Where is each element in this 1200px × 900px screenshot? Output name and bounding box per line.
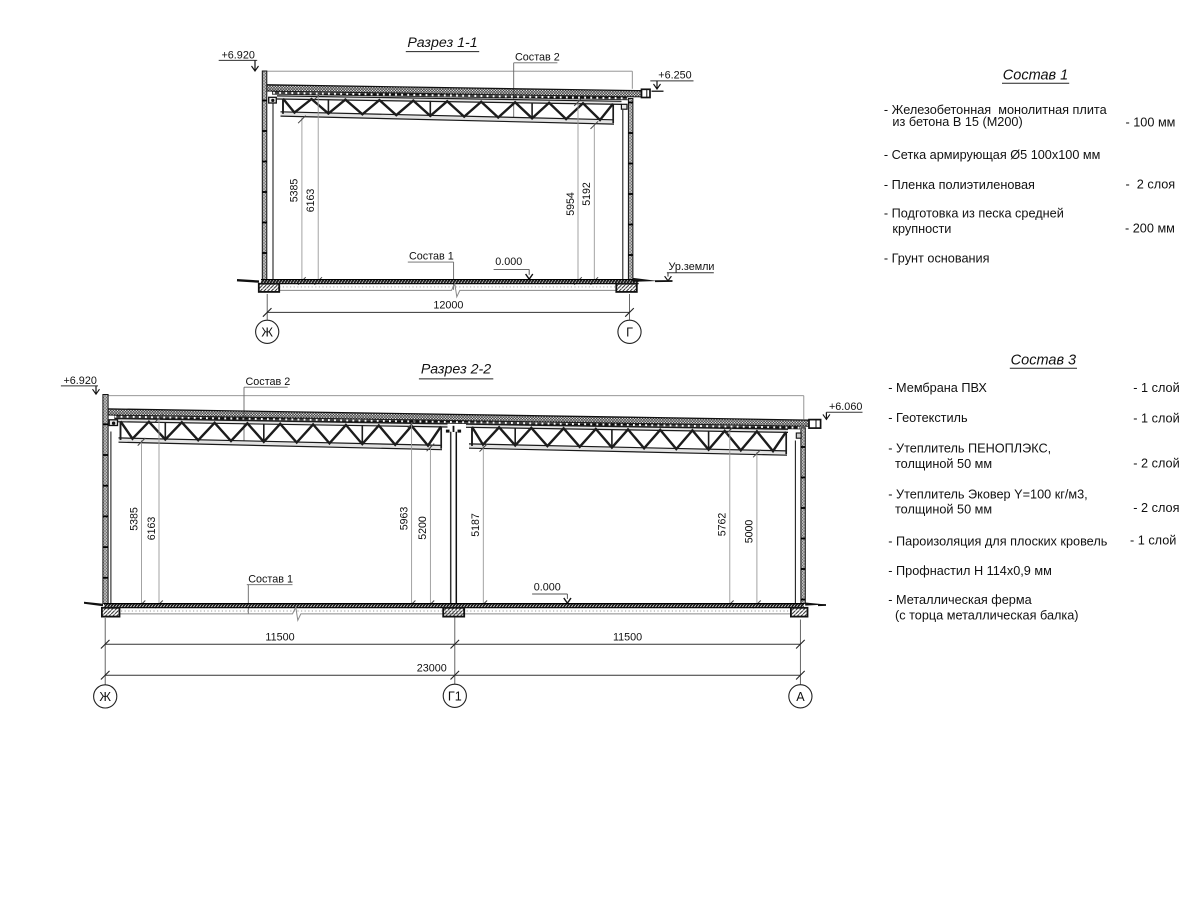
svg-text:Разрез 1-1: Разрез 1-1: [407, 35, 477, 51]
svg-text:+6.920: +6.920: [64, 375, 97, 387]
svg-text:- Пароизоляция для плоских кро: - Пароизоляция для плоских кровель: [888, 535, 1107, 549]
svg-text:Ж: Ж: [261, 325, 273, 339]
svg-text:5963: 5963: [398, 507, 410, 531]
svg-text:23000: 23000: [417, 662, 447, 674]
svg-text:11500: 11500: [613, 631, 642, 643]
svg-text:- 200 мм: - 200 мм: [1125, 221, 1175, 235]
svg-text:Состав 1: Состав 1: [248, 574, 293, 586]
svg-text:5192: 5192: [581, 182, 593, 206]
svg-text:5385: 5385: [128, 507, 140, 531]
svg-text:из бетона В 15 (М200): из бетона В 15 (М200): [892, 115, 1022, 129]
svg-text:Ж: Ж: [99, 690, 111, 704]
svg-text:- Пленка полиэтиленовая: - Пленка полиэтиленовая: [884, 178, 1035, 192]
svg-text:+6.920: +6.920: [222, 49, 255, 61]
svg-text:- Утеплитель Эковер Y=100 кг/м: - Утеплитель Эковер Y=100 кг/м3,: [888, 487, 1087, 501]
svg-text:- Подготовка из песка средней: - Подготовка из песка средней: [884, 207, 1064, 221]
svg-text:11500: 11500: [265, 631, 294, 643]
svg-text:5000: 5000: [744, 520, 756, 544]
svg-text:- Утеплитель ПЕНОПЛЭКС,: - Утеплитель ПЕНОПЛЭКС,: [888, 441, 1051, 455]
svg-text:- 100 мм: - 100 мм: [1126, 115, 1176, 129]
svg-text:+6.250: +6.250: [658, 69, 691, 81]
svg-text:(с торца металлическая балка): (с торца металлическая балка): [895, 608, 1079, 622]
svg-text:Состав 1: Состав 1: [1003, 68, 1068, 84]
svg-text:- Геотекстиль: - Геотекстиль: [888, 411, 968, 425]
svg-text:5385: 5385: [289, 179, 301, 203]
svg-text:- Металлическая ферма: - Металлическая ферма: [888, 593, 1032, 607]
svg-text:5954: 5954: [565, 192, 577, 216]
svg-text:Г1: Г1: [448, 689, 462, 703]
svg-text:5200: 5200: [417, 516, 429, 540]
svg-text:- 2 слой: - 2 слой: [1133, 456, 1179, 470]
svg-text:крупности: крупности: [892, 222, 951, 236]
svg-text:6163: 6163: [305, 189, 317, 213]
svg-text:+6.060: +6.060: [829, 401, 862, 413]
svg-text:- Грунт основания: - Грунт основания: [884, 251, 990, 265]
svg-text:- 2 слоя: - 2 слоя: [1126, 177, 1176, 191]
svg-text:толщиной 50 мм: толщиной 50 мм: [895, 502, 992, 516]
svg-text:Состав 1: Состав 1: [409, 251, 454, 263]
svg-text:- 1 слой: - 1 слой: [1133, 381, 1179, 395]
svg-text:12000: 12000: [433, 300, 463, 312]
svg-text:Состав 2: Состав 2: [515, 52, 560, 64]
svg-text:- Мембрана ПВХ: - Мембрана ПВХ: [888, 381, 987, 395]
svg-text:6163: 6163: [146, 517, 158, 541]
svg-text:А: А: [796, 690, 805, 704]
svg-text:- Сетка армирующая Ø5 100х100: - Сетка армирующая Ø5 100х100 мм: [884, 148, 1100, 162]
svg-text:Состав 3: Состав 3: [1011, 353, 1076, 369]
svg-text:Г: Г: [626, 325, 633, 339]
svg-text:- 1 слой: - 1 слой: [1133, 411, 1179, 425]
svg-text:5762: 5762: [717, 513, 729, 537]
svg-text:0.000: 0.000: [534, 582, 561, 594]
svg-text:0.000: 0.000: [495, 256, 522, 268]
svg-text:- Профнастил Н 114х0,9 мм: - Профнастил Н 114х0,9 мм: [888, 564, 1052, 578]
svg-text:Разрез 2-2: Разрез 2-2: [421, 362, 491, 378]
svg-text:- 1 слой: - 1 слой: [1130, 533, 1176, 547]
svg-text:толщиной 50 мм: толщиной 50 мм: [895, 457, 992, 471]
svg-text:Состав 2: Состав 2: [246, 376, 291, 388]
svg-text:Ур.земли: Ур.земли: [669, 261, 715, 273]
svg-text:- 2 слоя: - 2 слоя: [1133, 501, 1179, 515]
svg-text:5187: 5187: [470, 513, 482, 537]
